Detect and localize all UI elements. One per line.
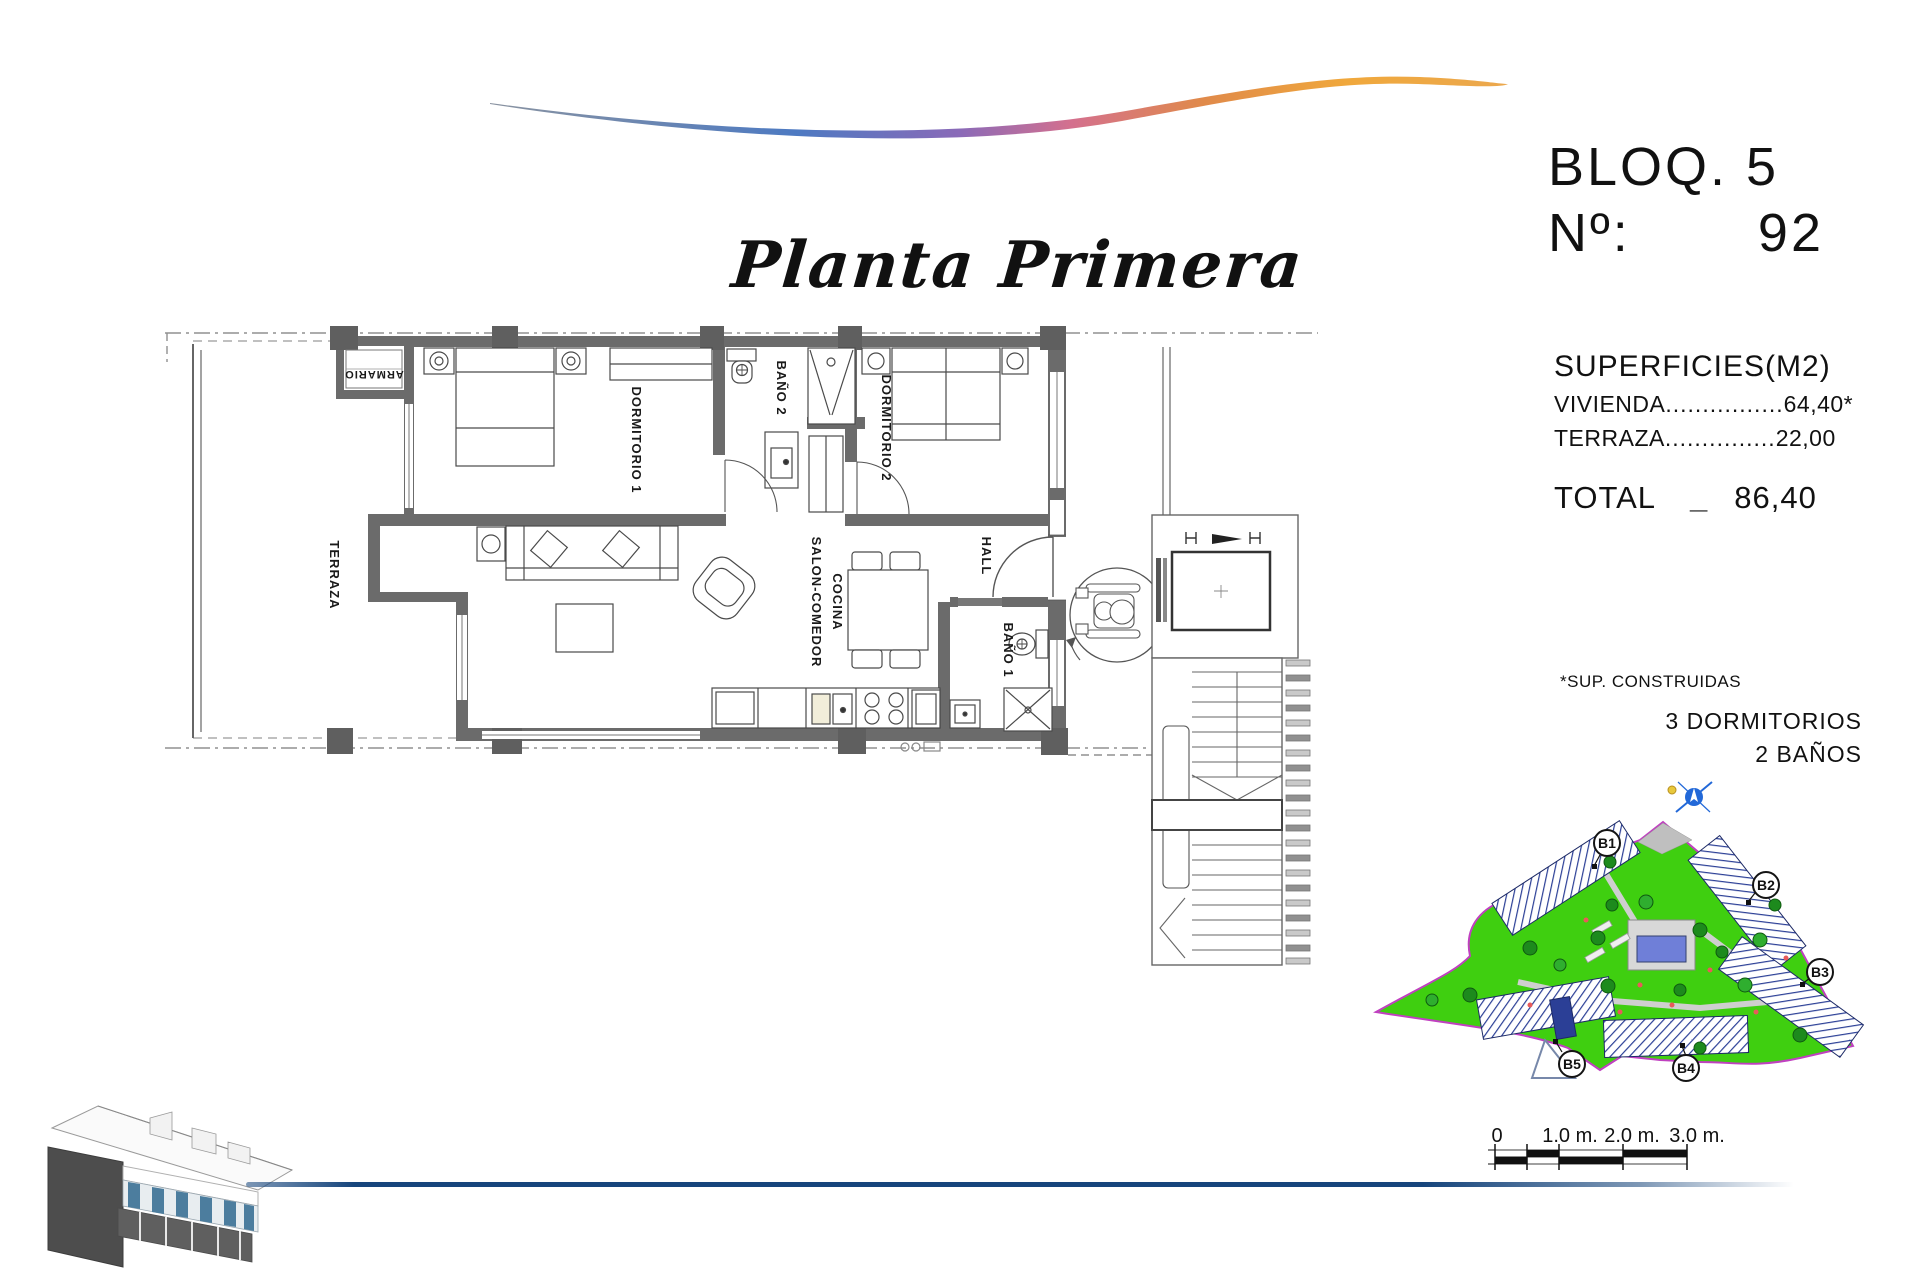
surface-row-terraza: TERRAZA...............22,00 [1554, 425, 1844, 452]
bedrooms-note: 3 DORMITORIOS [1560, 708, 1862, 735]
scale-label-1m: 1.0 m. [1542, 1125, 1598, 1147]
stairs [1152, 658, 1282, 965]
bathrooms-note: 2 BAÑOS [1560, 741, 1862, 768]
room-label-dormitorio1: DORMITORIO 1 [629, 386, 644, 493]
room-label-salon-line2: COCINA [830, 573, 845, 630]
site-marker-b4: B4 [1677, 1060, 1695, 1076]
scale-segments [1495, 1150, 1687, 1164]
room-label-armario: ARMARIO [344, 368, 404, 380]
gradient-swoosh [480, 55, 1540, 145]
room-label-bano1: BAÑO 1 [1001, 622, 1016, 677]
surfaces-total-row: TOTAL _ 86,40 [1554, 480, 1844, 516]
plan-sheet: Planta Primera BLOQ. 5 Nº: 92 SUPERFICIE… [0, 0, 1920, 1280]
number-label: Nº: [1548, 202, 1631, 264]
floor-plan: TERRAZA [160, 320, 1340, 1020]
total-value: 86,40 [1734, 480, 1817, 516]
room-label-dormitorio2: DORMITORIO 2 [879, 374, 894, 481]
elevator [1152, 347, 1298, 658]
number-value: 92 [1758, 202, 1824, 264]
surface-row-vivienda: VIVIENDA................64,40* [1554, 391, 1844, 418]
swoosh-ribbon [490, 77, 1508, 139]
footnote: *SUP. CONSTRUIDAS [1560, 672, 1862, 692]
page-title: Planta Primera [729, 228, 1307, 303]
site-marker-b1: B1 [1598, 835, 1616, 851]
room-label-terraza: TERRAZA [327, 540, 342, 609]
total-separator: _ [1690, 480, 1708, 516]
terrace: TERRAZA [193, 341, 456, 738]
stair-railing [1286, 660, 1310, 964]
room-label-hall: HALL [979, 537, 994, 576]
site-plan: B1 B2 B3 B4 B5 [1360, 770, 1920, 1100]
block-label: BLOQ. 5 [1548, 140, 1824, 194]
room-label-salon-line1: SALON-COMEDOR [809, 537, 824, 668]
pool [1628, 920, 1695, 970]
site-marker-b3: B3 [1811, 964, 1829, 980]
wheelchair-icon [1066, 568, 1164, 662]
notes-panel: *SUP. CONSTRUIDAS 3 DORMITORIOS 2 BAÑOS [1560, 672, 1862, 768]
block-info: BLOQ. 5 Nº: 92 [1548, 140, 1824, 264]
scale-label-0: 0 [1491, 1125, 1502, 1147]
surfaces-panel: SUPERFICIES(M2) VIVIENDA................… [1554, 350, 1844, 516]
furniture [424, 348, 1052, 751]
room-label-bano2: BAÑO 2 [774, 360, 789, 415]
total-label: TOTAL [1554, 480, 1656, 516]
scale-label-2m: 2.0 m. [1604, 1125, 1660, 1147]
scale-labels: 0 1.0 m. 2.0 m. 3.0 m. [1491, 1125, 1724, 1147]
scale-label-3m: 3.0 m. [1669, 1125, 1725, 1147]
surfaces-heading: SUPERFICIES(M2) [1554, 350, 1844, 384]
site-marker-b2: B2 [1757, 877, 1775, 893]
baseline-rule [246, 1182, 1794, 1187]
compass-icon [1668, 782, 1712, 812]
site-marker-b5: B5 [1563, 1056, 1581, 1072]
